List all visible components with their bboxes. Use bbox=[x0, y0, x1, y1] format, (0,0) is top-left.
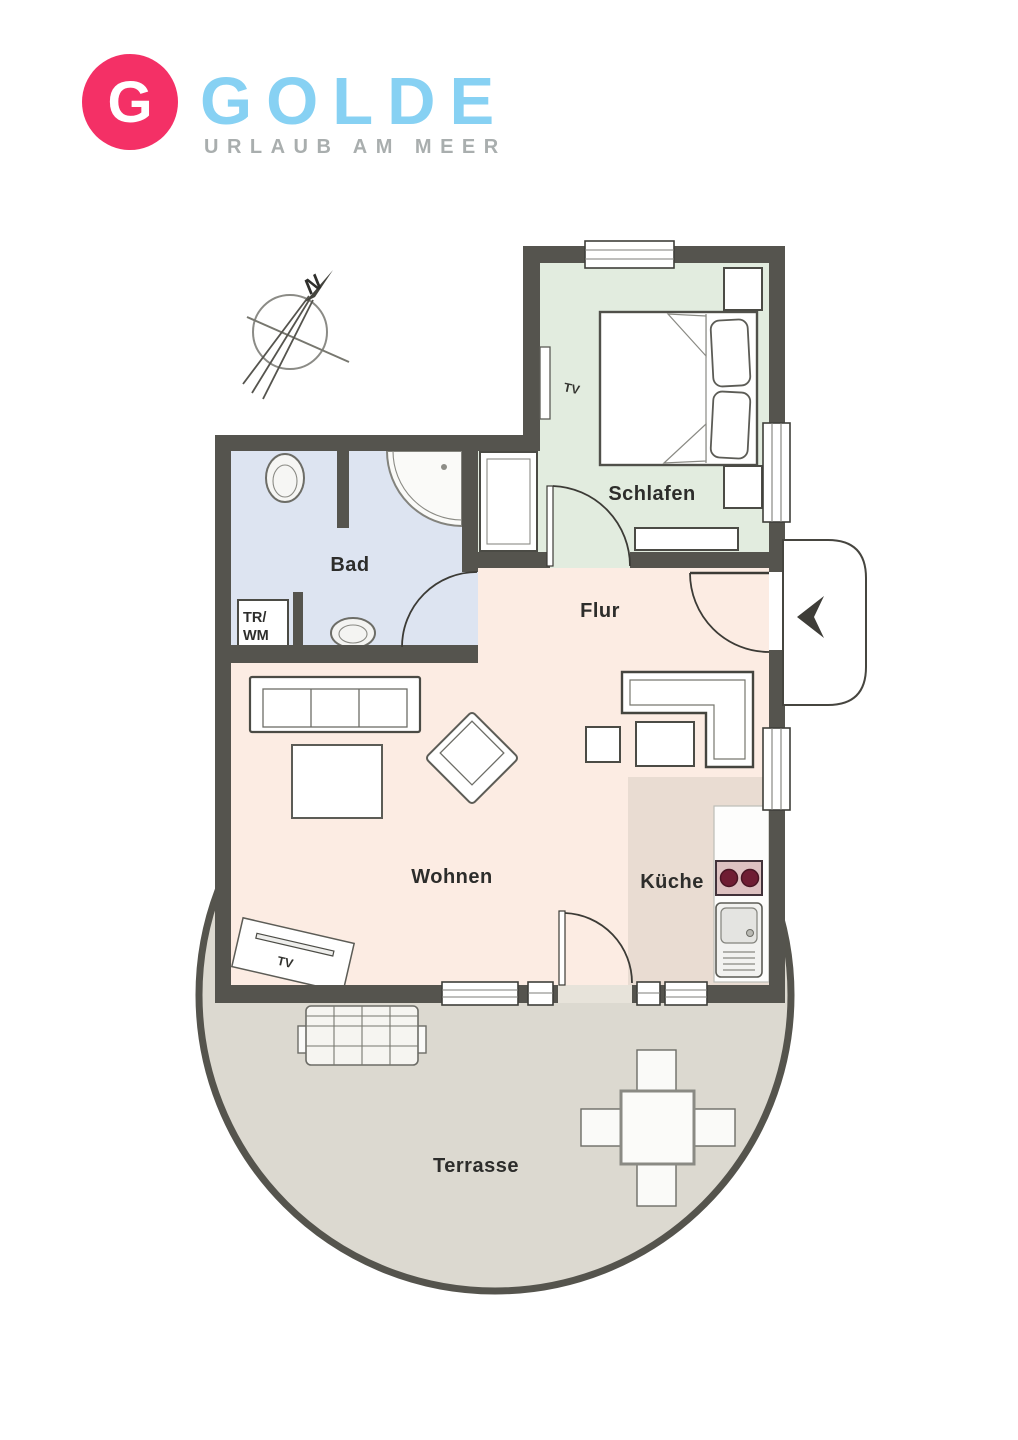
terrace-chair-top bbox=[637, 1050, 676, 1094]
label-washer-1: TR/ bbox=[243, 610, 266, 626]
dining-window-right bbox=[763, 728, 790, 810]
entry-marker-shape bbox=[783, 540, 866, 705]
dining-table bbox=[636, 722, 694, 766]
terrace-door-gap bbox=[558, 985, 632, 1003]
kitchen-sink-basin bbox=[721, 908, 757, 943]
toilet bbox=[266, 454, 304, 502]
floorplan-page: TV bbox=[0, 0, 1018, 1440]
shower-drain bbox=[441, 464, 447, 470]
compass: N bbox=[243, 269, 349, 399]
pillow-bottom bbox=[710, 391, 750, 459]
floorplan-canvas: TV bbox=[0, 0, 1018, 1440]
compass-needle-fan bbox=[243, 296, 313, 399]
bedroom-sideboard bbox=[635, 528, 738, 550]
nightstand-bottom bbox=[724, 466, 762, 508]
bedroom-tv-panel bbox=[540, 347, 550, 419]
burner-left bbox=[721, 870, 738, 887]
burner-right bbox=[742, 870, 759, 887]
terrace-chair-bottom bbox=[637, 1162, 676, 1206]
label-bad: Bad bbox=[330, 554, 369, 576]
label-flur: Flur bbox=[580, 600, 620, 622]
sun-lounger bbox=[298, 1006, 426, 1065]
label-washer-2: WM bbox=[243, 628, 269, 644]
terrace-table bbox=[621, 1091, 694, 1164]
dining-stool bbox=[586, 727, 620, 762]
label-terrasse: Terrasse bbox=[433, 1155, 519, 1177]
label-schlafen: Schlafen bbox=[608, 483, 695, 505]
bath-door-gap bbox=[462, 572, 478, 645]
bedroom-door-leaf bbox=[547, 486, 553, 566]
logo-brand: GOLDE bbox=[200, 64, 508, 139]
terrace-door-leaf bbox=[559, 911, 565, 985]
pillow-top bbox=[710, 319, 750, 387]
entry-marker bbox=[783, 540, 866, 705]
kitchen-window-bottom bbox=[665, 982, 707, 1005]
terrace-chair-right bbox=[692, 1109, 735, 1146]
wardrobe bbox=[480, 452, 537, 551]
label-wohnen: Wohnen bbox=[411, 866, 493, 888]
logo-tagline: URLAUB AM MEER bbox=[204, 136, 507, 158]
logo-letter: G bbox=[107, 70, 152, 135]
bedroom-window-right bbox=[763, 423, 790, 522]
terrace-chair-left bbox=[581, 1109, 624, 1146]
bedroom-door-gap bbox=[550, 552, 630, 568]
living-window-bottom bbox=[442, 982, 518, 1005]
logo: G GOLDE URLAUB AM MEER bbox=[82, 54, 508, 158]
sofa bbox=[250, 677, 420, 732]
coffee-table bbox=[292, 745, 382, 818]
nightstand-top bbox=[724, 268, 762, 310]
bedroom-window-top bbox=[585, 241, 674, 268]
label-kueche: Küche bbox=[640, 871, 704, 893]
faucet bbox=[747, 930, 754, 937]
